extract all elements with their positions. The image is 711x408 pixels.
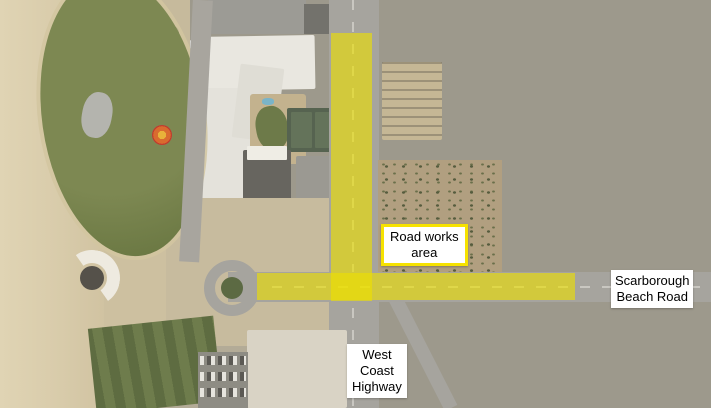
map-feature xyxy=(208,0,306,34)
scarborough-beach-road-label: Scarborough Beach Road xyxy=(611,270,693,308)
label-line: Highway xyxy=(352,379,402,395)
shopping-centre xyxy=(247,330,347,408)
parked-cars-row xyxy=(200,388,246,397)
label-line: Beach Road xyxy=(615,289,689,305)
roadworks-highlight-horizontal xyxy=(257,273,575,300)
map-feature xyxy=(291,112,312,148)
label-line: Scarborough xyxy=(615,273,689,289)
map-feature xyxy=(262,98,274,105)
parked-cars-row xyxy=(200,356,246,365)
label-line: Road works xyxy=(390,229,459,245)
road-works-area-label: Road works area xyxy=(381,224,468,266)
parked-cars-row xyxy=(200,372,246,381)
playground xyxy=(152,125,172,145)
aerial-map: Road works area Scarborough Beach Road W… xyxy=(0,0,711,408)
roof-ridges xyxy=(382,62,442,140)
apartment-building xyxy=(382,62,442,140)
west-coast-highway-label: West Coast Highway xyxy=(347,344,407,398)
label-line: West xyxy=(352,347,402,363)
roundabout-island xyxy=(221,277,243,299)
amphitheatre-pit xyxy=(80,266,104,290)
parking-lot xyxy=(198,352,248,408)
label-line: Coast xyxy=(352,363,402,379)
roadworks-highlight-vertical xyxy=(331,33,372,301)
label-line: area xyxy=(390,245,459,261)
map-feature xyxy=(247,146,287,160)
